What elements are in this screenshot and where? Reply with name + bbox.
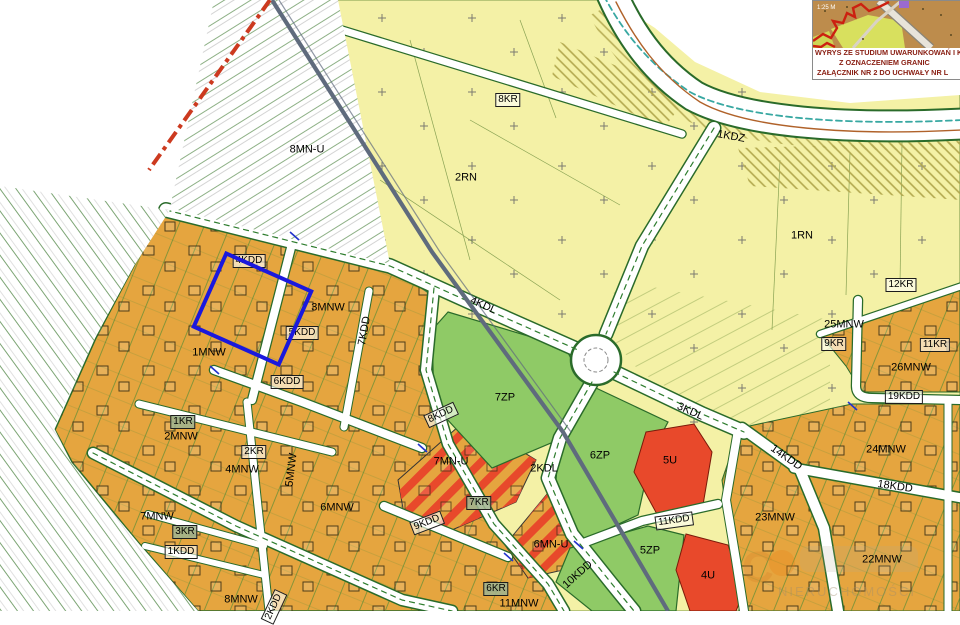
inset-purple-zone — [899, 1, 909, 8]
inset-scale-text: 1:25 M — [817, 5, 835, 11]
watermark: C NIERUCHOMOŚCI — [742, 543, 918, 599]
zoning-map-page: { "colors": { "zone_yellow": "#f4f1a6", … — [0, 0, 960, 611]
inset-caption: WYRYS ZE STUDIUM UWARUNKOWAŃ I KI Z OZNA… — [813, 48, 960, 79]
caption-line-1: WYRYS ZE STUDIUM UWARUNKOWAŃ I KI — [815, 48, 960, 58]
roundabout — [571, 335, 621, 385]
watermark-logo-letter: C — [742, 543, 774, 592]
inset-mini-map: 1:25 M — [813, 1, 960, 48]
caption-line-2: Z OZNACZENIEM GRANIC — [839, 58, 960, 68]
study-inset-map: 1:25 M WYRYS ZE STUDIUM UWARUNKOWAŃ I KI… — [812, 0, 960, 80]
watermark-text: NIERUCHOMOŚCI — [778, 584, 916, 599]
caption-line-3: ZAŁĄCZNIK NR 2 DO UCHWAŁY NR L — [817, 68, 960, 78]
map-canvas[interactable]: C NIERUCHOMOŚCI — [0, 0, 960, 611]
